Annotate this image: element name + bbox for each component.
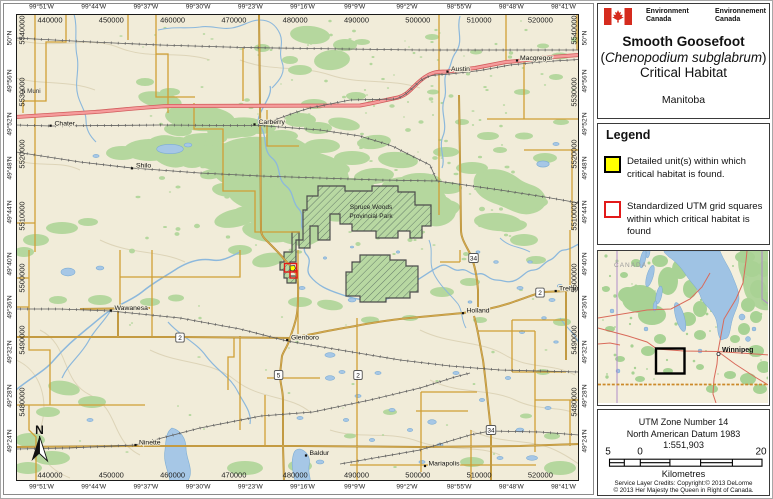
svg-text:20: 20 [755, 447, 767, 458]
svg-text:5: 5 [605, 447, 611, 458]
svg-text:0: 0 [637, 447, 643, 458]
